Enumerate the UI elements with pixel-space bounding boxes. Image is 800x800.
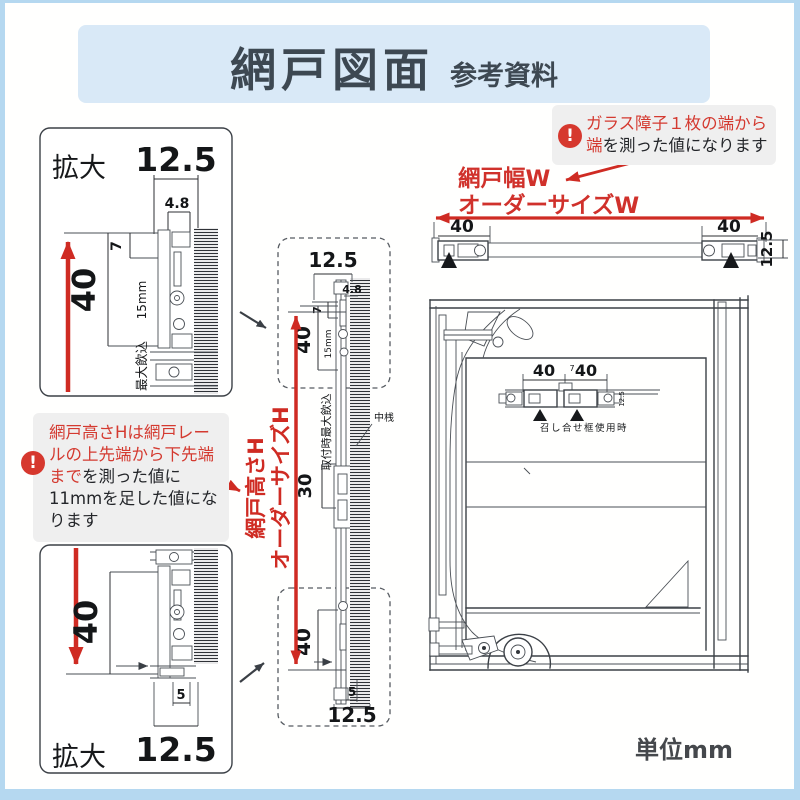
mesh-corner (646, 561, 688, 607)
frame-hatch-right (718, 302, 726, 640)
screen-width-label: 網戸幅W オーダーサイズW (458, 166, 639, 219)
sv-dim-bottom-width: 12.5 (327, 703, 376, 727)
mesh-brush-hatch (194, 228, 218, 394)
net-section-bar (488, 243, 702, 257)
sv-dim-bottom-gap: 5 (348, 685, 356, 699)
page-title-banner: 網戸図面 参考資料 (78, 25, 710, 103)
mesh-brush-hatch (350, 278, 370, 708)
note-width-measurement: ! ガラス障子１枚の端から 端を測った値になります (552, 105, 776, 165)
sh-dim-left: 40 (450, 217, 474, 237)
mid-rail-label: 中桟 (374, 411, 394, 424)
note-width-line2-rest: を測った値になります (603, 136, 768, 155)
note-width-line1: ガラス障子１枚の端から (586, 114, 767, 133)
dim-height-bottom-detail: 40 (67, 600, 105, 645)
alert-icon: ! (21, 451, 45, 475)
dim-gap-bottom-detail: 5 (176, 688, 185, 703)
sh-dim-right: 40 (717, 217, 741, 237)
sv-engage-label: 取付時最大飲込 (319, 394, 333, 471)
win-dim-small: 7 (569, 364, 574, 373)
win-dim-left: 40 (533, 361, 555, 380)
corner-roller (503, 312, 537, 344)
window-elevation-view: 40 40 7 12.5 召し合せ框使用時 (429, 296, 748, 672)
sv-dim-width: 12.5 (308, 248, 357, 272)
detail-top-title: 拡大 (52, 153, 106, 184)
dim-height-top-detail: 40 (65, 268, 103, 313)
sv-dim-offset: 4.8 (342, 283, 362, 296)
dim-offset-top-detail: 4.8 (165, 196, 190, 212)
detail-top-view: 拡大 12.5 4.8 7 40 15mm 最大飲込 (40, 128, 232, 396)
sh-dim-thickness: 12.5 (758, 230, 776, 267)
alert-icon: ! (558, 124, 582, 148)
note-height-measurement: ! 網戸高さHは網戸レールの上先端から下先端までを測った値に11mmを足した値に… (33, 413, 229, 542)
mesh-brush-hatch (194, 548, 218, 664)
detail-bottom-title: 拡大 (52, 742, 106, 773)
win-dim-side: 12.5 (618, 391, 626, 407)
callout-arrow-bottom (240, 663, 264, 682)
engage-length-top-detail: 15mm (135, 281, 149, 320)
vertical-section-view: 12.5 4.8 7 40 15mm 取付時最大飲込 30 中桟 40 5 12… (240, 238, 394, 727)
screen-width-label-2: オーダーサイズW (458, 193, 639, 220)
callout-arrow-top (240, 312, 266, 328)
note-width-line2-red: 端 (586, 136, 603, 155)
screen-width-label-1: 網戸幅W (458, 166, 639, 193)
frame-hatch-left (439, 315, 446, 595)
page: 拡大 12.5 4.8 7 40 15mm 最大飲込 (0, 0, 800, 800)
detail-bottom-view: 40 5 12.5 拡大 (40, 545, 232, 773)
dim-width-bottom-detail: 12.5 (135, 730, 216, 769)
sv-dim-mid: 30 (295, 473, 316, 498)
page-subtitle: 参考資料 (450, 63, 558, 90)
meeting-stile-caption: 召し合せ框使用時 (540, 422, 628, 434)
unit-label: 単位mm (635, 730, 733, 765)
screen-height-label-1: 網戸高さH (244, 437, 268, 539)
screen-height-label-2: オーダーサイズH (269, 406, 293, 570)
sv-engage-length: 15mm (324, 330, 334, 359)
dim-gap-top-detail: 7 (109, 241, 125, 251)
engage-label-top-detail: 最大飲込 (134, 341, 149, 392)
dim-width-top-detail: 12.5 (135, 140, 216, 179)
win-dim-right: 40 (575, 361, 597, 380)
page-title: 網戸図面 (230, 47, 434, 93)
